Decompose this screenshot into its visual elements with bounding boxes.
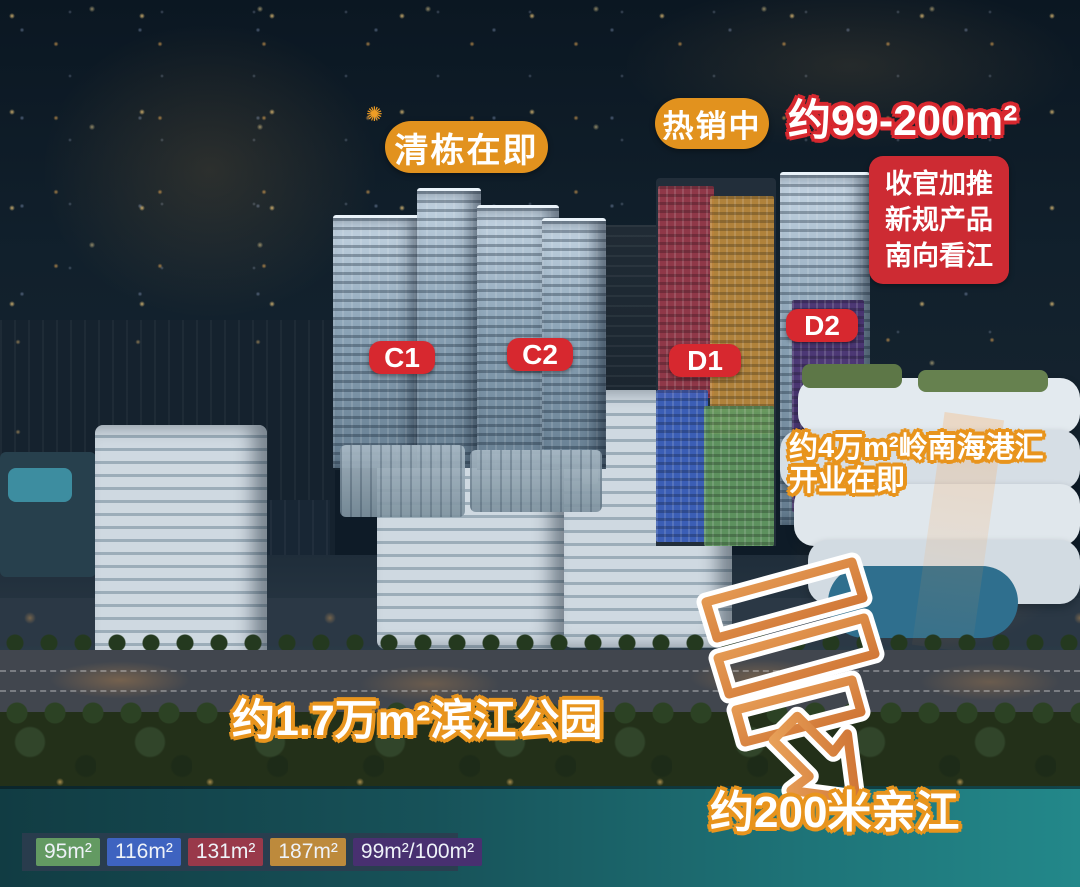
city-glow-left: [40, 20, 380, 320]
final-push-line-3: 南向看江: [881, 238, 997, 274]
tower-label-c1: C1: [369, 341, 435, 374]
final-push-panel: 收官加推 新规产品 南向看江: [869, 156, 1009, 284]
badge-hot-selling: 热销中: [655, 98, 769, 149]
mall-annotation-line2: 开业在即: [789, 457, 905, 499]
aerial-night-render: ✺ 清栋在即 热销中 约99-200m² 收官加推 新规产品 南向看江 C1 C…: [0, 0, 1080, 887]
mall-green-roof-2: [918, 370, 1048, 392]
sparkle-icon: ✺: [366, 102, 383, 127]
d1-green-units: [704, 406, 774, 546]
river-distance-annotation: 约200米亲江: [710, 776, 959, 840]
river-direction-arrow: [672, 540, 972, 805]
unit-size-legend: 95m² 116m² 131m² 187m² 99m²/100m²: [22, 833, 458, 871]
badge-clearing-soon: 清栋在即: [385, 121, 548, 173]
d1-blue-units: [656, 390, 708, 542]
white-midrise-left: [95, 425, 267, 665]
mall-green-roof-1: [802, 364, 902, 388]
tower-c1-b: [417, 188, 481, 468]
legend-item-131: 131m²: [188, 838, 264, 866]
final-push-line-1: 收官加推: [881, 166, 997, 202]
d1-orange-units: [710, 196, 774, 434]
legend-item-95: 95m²: [36, 838, 100, 866]
podium-c-right: [470, 450, 602, 512]
final-push-line-2: 新规产品: [881, 202, 997, 238]
legend-item-116: 116m²: [107, 838, 181, 866]
area-range-text: 约99-200m²: [788, 86, 1017, 148]
tower-label-d1: D1: [669, 344, 741, 377]
left-rooftop-pool: [8, 468, 72, 502]
legend-item-99-100: 99m²/100m²: [353, 838, 482, 866]
tower-label-c2: C2: [507, 338, 573, 371]
podium-c-left: [340, 445, 465, 517]
tower-label-d2: D2: [786, 309, 858, 342]
riverside-park-annotation: 约1.7万m²滨江公园: [232, 686, 602, 748]
legend-item-187: 187m²: [270, 838, 346, 866]
